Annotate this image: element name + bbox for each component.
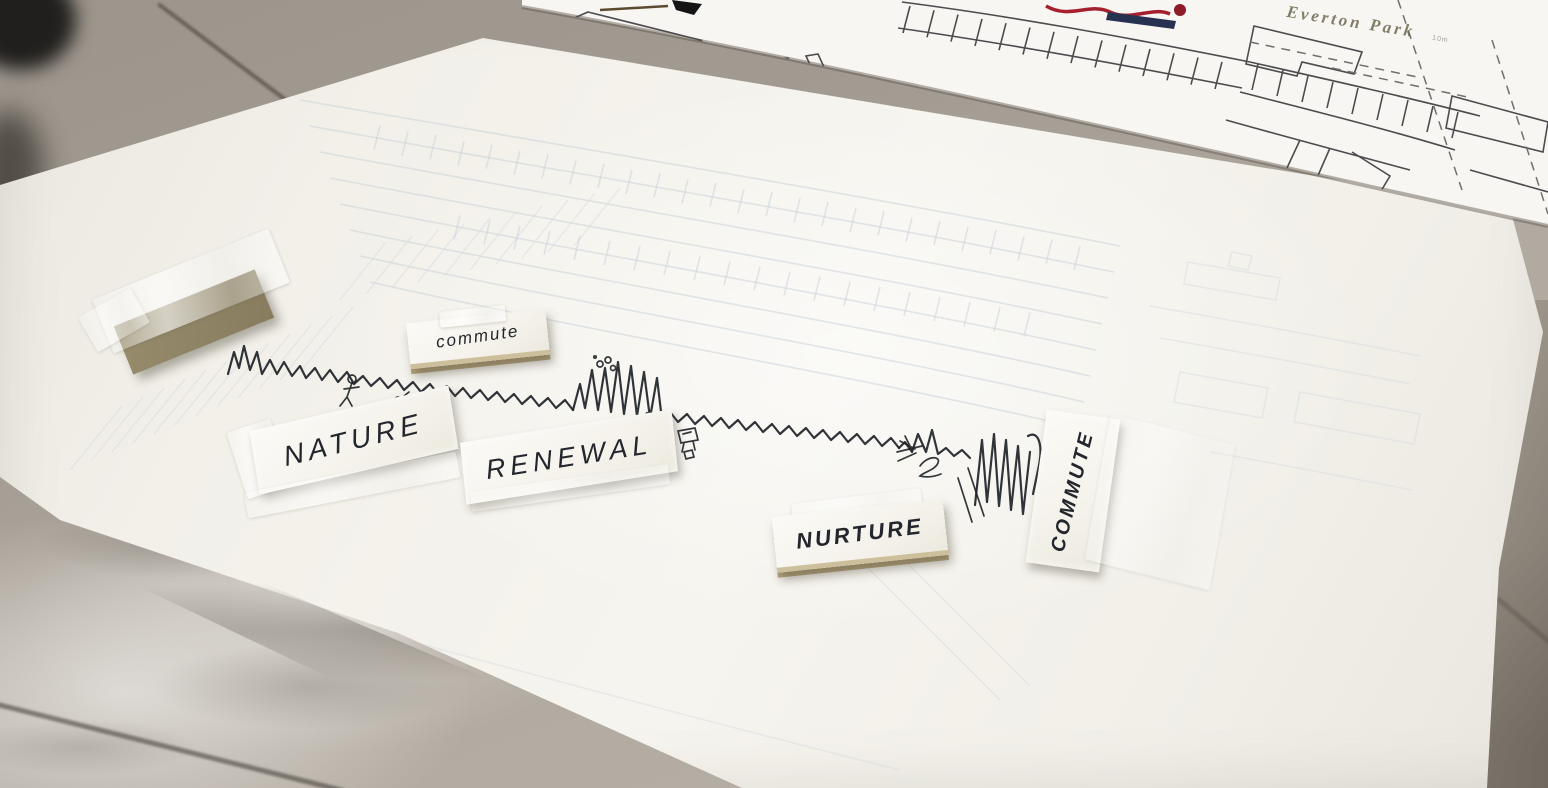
under-sheet-edge bbox=[60, 528, 640, 770]
stick-figure-icon bbox=[340, 375, 359, 406]
nurture-text: NURTURE bbox=[795, 513, 925, 554]
cube-robot-icon bbox=[678, 428, 698, 459]
tape bbox=[1085, 414, 1235, 591]
tall-towers-sketch bbox=[958, 434, 1040, 522]
squiggle-icon bbox=[920, 458, 941, 477]
photo-scene: Everton Park 10m bbox=[0, 0, 1548, 788]
poster-drawings bbox=[0, 0, 1548, 788]
spray-arrow-icon bbox=[897, 436, 922, 461]
